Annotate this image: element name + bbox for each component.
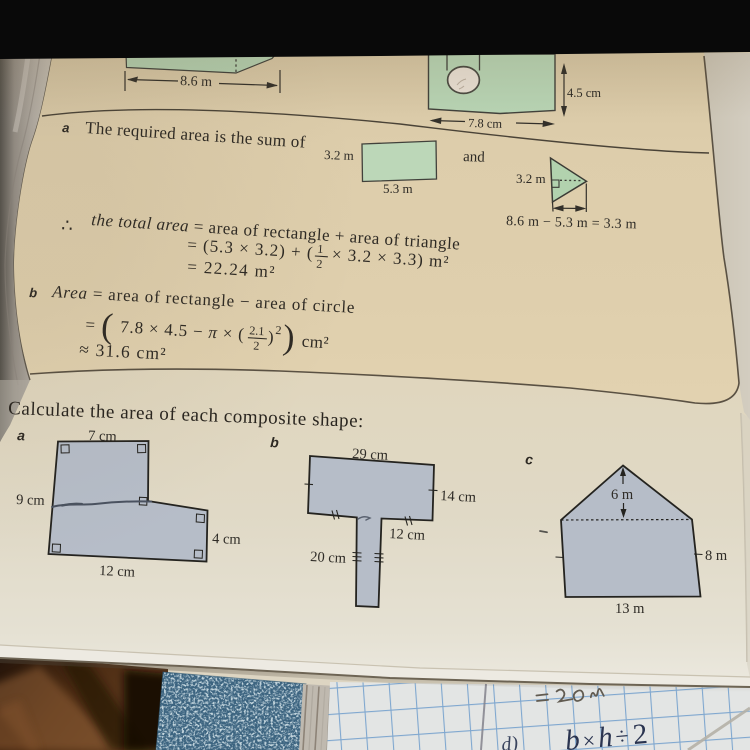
svg-text:2: 2 [632, 718, 649, 750]
svg-text:h: h [597, 721, 614, 750]
svg-text:×: × [580, 727, 597, 750]
svg-text:b: b [564, 724, 581, 750]
svg-text:÷: ÷ [614, 724, 629, 750]
svg-text:d): d) [500, 732, 519, 750]
